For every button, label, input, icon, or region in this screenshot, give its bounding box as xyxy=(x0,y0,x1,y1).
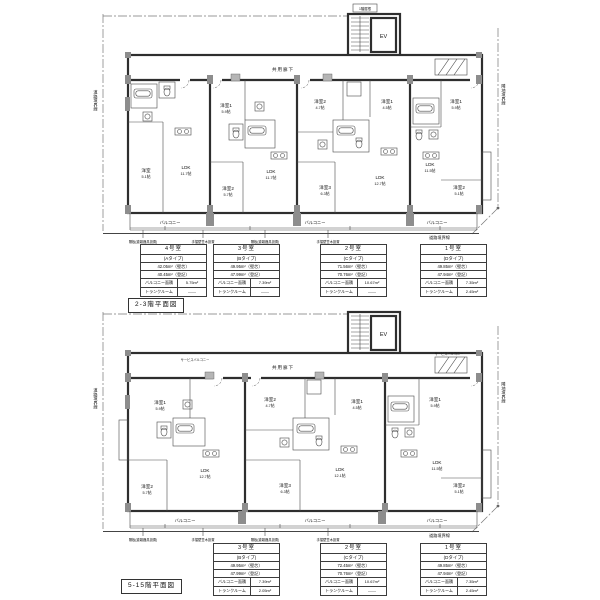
area-registered: 47.94m²（登記） xyxy=(421,270,486,278)
room-label: 洋室1 xyxy=(381,98,393,105)
unit-table-lower-room2: 2号室 (Cタイプ) 72.45m²（壁芯） 70.76m²（登記） バルコニー… xyxy=(320,543,387,596)
meter-box xyxy=(315,372,324,379)
room-size: 6.3帖 xyxy=(280,489,289,494)
room-type: (Bタイプ) xyxy=(214,254,279,262)
area-registered: 70.76m²（登記） xyxy=(321,270,386,278)
balcony-area-value: 7.39m² xyxy=(251,279,279,287)
room-size: 11.7帖 xyxy=(181,171,192,176)
room-label: LDK xyxy=(201,468,211,473)
room-number: 4号室 xyxy=(141,245,206,254)
side-service-balcony xyxy=(482,152,491,200)
room-label: 洋室2 xyxy=(222,185,234,192)
balcony-label: バルコニー xyxy=(427,220,448,225)
note-label: 手摺壁笠木設置 xyxy=(316,537,340,542)
balcony-label: バルコニー xyxy=(160,220,181,225)
room-label: 洋室2 xyxy=(453,184,465,191)
boundary-bottom-label: 道路境界線 xyxy=(429,532,451,539)
room-size: 5.7帖 xyxy=(223,192,232,197)
room-type: (Dタイプ) xyxy=(421,254,486,262)
room-label: LDK xyxy=(376,175,386,180)
room-size: 5.1帖 xyxy=(141,174,150,179)
floorplan-lower: 道路境界線 隣地境界線 道路境界線 EV xyxy=(85,300,515,543)
balcony-area-label: バルコニー面積 xyxy=(421,279,458,287)
room-number: 2号室 xyxy=(321,544,386,553)
room-label: 洋室2 xyxy=(264,396,276,403)
area-registered: 47.94m²（登記） xyxy=(421,569,486,577)
area-wallcore: 49.95m²（壁芯） xyxy=(214,262,279,270)
room-label: 洋室2 xyxy=(314,98,326,105)
balcony-label: バルコニー xyxy=(175,518,196,523)
trunk-label: トランクルーム xyxy=(421,587,458,595)
balcony-notes: 隔板(避難器具設置) 手摺壁笠木設置 隔板(避難器具設置) 手摺壁笠木設置 xyxy=(129,528,341,542)
room-size: 5.7帖 xyxy=(142,490,151,495)
room-label: 洋室3 xyxy=(279,482,291,489)
room-label: 洋室3 xyxy=(319,184,331,191)
unit-table-upper-room4: 4号室 (Aタイプ) 42.05m²（壁芯） 40.45m²（登記） バルコニー… xyxy=(140,244,207,297)
balcony-label: バルコニー xyxy=(305,220,326,225)
meter-box xyxy=(231,74,240,81)
room-size: 6.3帖 xyxy=(320,191,329,196)
area-wallcore: 49.95m²（壁芯） xyxy=(214,561,279,569)
room-number: 1号室 xyxy=(421,544,486,553)
area-wallcore: 71.56m²（壁芯） xyxy=(321,262,386,270)
balcony-area-value: 10.67m² xyxy=(358,578,386,586)
room-size: 5.9帖 xyxy=(221,109,230,114)
balcony-area-value: 7.35m² xyxy=(458,578,486,586)
balcony-area-value: 10.67m² xyxy=(358,279,386,287)
balcony-label: バルコニー xyxy=(305,518,326,523)
corridor-label: 共用廊下 xyxy=(272,66,294,73)
room-size: 12.1帖 xyxy=(334,473,345,478)
room-label: 洋室1 xyxy=(154,399,166,406)
balcony-area-label: バルコニー面積 xyxy=(214,279,251,287)
balcony-area-value: 7.39m² xyxy=(251,578,279,586)
room-size: 5.9帖 xyxy=(451,105,460,110)
room-number: 3号室 xyxy=(214,245,279,254)
room-size: 11.7帖 xyxy=(266,175,277,180)
area-registered: 47.99m²（登記） xyxy=(214,270,279,278)
room-size: 5.1帖 xyxy=(454,191,463,196)
room-type: (Bタイプ) xyxy=(214,553,279,561)
room-size: 5.9帖 xyxy=(430,403,439,408)
trunk-value: 2.45m² xyxy=(458,587,486,595)
room-size: 12.7帖 xyxy=(199,474,210,479)
balcony-area-label: バルコニー面積 xyxy=(321,578,358,586)
balcony-area-value: 5.75m² xyxy=(178,279,206,287)
room-label: 洋室2 xyxy=(453,482,465,489)
unit-table-upper-room3: 3号室 (Bタイプ) 49.95m²（壁芯） 47.99m²（登記） バルコニー… xyxy=(213,244,280,297)
room-number: 1号室 xyxy=(421,245,486,254)
balcony-area-label: バルコニー面積 xyxy=(214,578,251,586)
room-label: LDK xyxy=(182,165,192,170)
stair-elevator-block: EV 1階屋根 xyxy=(348,4,400,56)
meter-box xyxy=(205,372,214,379)
balcony-label: バルコニー xyxy=(427,518,448,523)
room-size: 4.7帖 xyxy=(265,403,274,408)
trunk-label: トランクルーム xyxy=(214,288,251,296)
trunk-value: 2.05m² xyxy=(251,587,279,595)
balcony-area-label: バルコニー面積 xyxy=(321,279,358,287)
area-wallcore: 49.85m²（壁芯） xyxy=(421,262,486,270)
area-wallcore: 42.05m²（壁芯） xyxy=(141,262,206,270)
area-registered: 40.45m²（登記） xyxy=(141,270,206,278)
boundary-left-label: 道路境界線 xyxy=(93,387,99,410)
room-type: (Cタイプ) xyxy=(321,254,386,262)
balcony-area-label: バルコニー面積 xyxy=(141,279,178,287)
room-label: LDK xyxy=(426,162,436,167)
room-label: 洋室1 xyxy=(450,98,462,105)
floorplan-upper: 道路境界線 隣地境界線 道路境界線 EV 1階屋根 xyxy=(85,2,515,245)
room-label: 洋室2 xyxy=(141,483,153,490)
side-service-balcony xyxy=(482,450,491,498)
trunk-label: トランクルーム xyxy=(321,587,358,595)
trunk-value: —— xyxy=(358,587,386,595)
room-size: 4.5帖 xyxy=(382,105,391,110)
note-label: 手摺壁笠木設置 xyxy=(191,537,215,542)
trunk-label: トランクルーム xyxy=(421,288,458,296)
balcony-area-label: バルコニー面積 xyxy=(421,578,458,586)
unit-table-upper-room1: 1号室 (Dタイプ) 49.85m²（壁芯） 47.94m²（登記） バルコニー… xyxy=(420,244,487,297)
side-service-balcony xyxy=(119,420,128,460)
trunk-value: —— xyxy=(358,288,386,296)
service-balcony-label: サービスバルコニー xyxy=(435,351,464,356)
meter-box xyxy=(323,74,332,81)
trunk-label: トランクルーム xyxy=(321,288,358,296)
unit-table-lower-room3: 3号室 (Bタイプ) 49.95m²（壁芯） 47.99m²（登記） バルコニー… xyxy=(213,543,280,596)
balcony-area-value: 7.35m² xyxy=(458,279,486,287)
room-label: 洋室 xyxy=(141,167,151,174)
room-label: 洋室1 xyxy=(220,102,232,109)
room-size: 5.9帖 xyxy=(155,406,164,411)
room-type: (Dタイプ) xyxy=(421,553,486,561)
trunk-value: 2.45m² xyxy=(458,288,486,296)
area-wallcore: 49.85m²（壁芯） xyxy=(421,561,486,569)
corridor-label: 共用廊下 xyxy=(272,364,294,371)
trunk-value: —— xyxy=(251,288,279,296)
building-shell xyxy=(125,52,491,214)
note-label: 隔板(避難器具設置) xyxy=(251,537,280,542)
unit-table-lower-room1: 1号室 (Dタイプ) 49.85m²（壁芯） 47.94m²（登記） バルコニー… xyxy=(420,543,487,596)
plan-title-lower: 5-15階平面図 xyxy=(121,579,182,594)
room-size: 4.7帖 xyxy=(315,105,324,110)
room-label: 洋室1 xyxy=(351,398,363,405)
stair-elevator-block: EV xyxy=(348,312,400,354)
boundary-left-label: 道路境界線 xyxy=(93,89,99,112)
boundary-right-label: 隣地境界線 xyxy=(501,83,507,106)
elevator-label: EV xyxy=(380,34,388,40)
trunk-label: トランクルーム xyxy=(141,288,178,296)
elevator-label: EV xyxy=(380,332,388,338)
room-size: 4.5帖 xyxy=(352,405,361,410)
service-balcony-label: サービスバルコニー xyxy=(181,357,210,362)
room-size: 11.5帖 xyxy=(425,168,436,173)
room-size: 12.7帖 xyxy=(374,181,385,186)
area-registered: 70.76m²（登記） xyxy=(321,569,386,577)
unit-table-upper-room2: 2号室 (Cタイプ) 71.56m²（壁芯） 70.76m²（登記） バルコニー… xyxy=(320,244,387,297)
boundary-bottom-label: 道路境界線 xyxy=(429,234,451,241)
room-number: 2号室 xyxy=(321,245,386,254)
room-label: 洋室1 xyxy=(429,396,441,403)
roof-note-label: 1階屋根 xyxy=(359,6,372,11)
room-number: 3号室 xyxy=(214,544,279,553)
room-type: (Aタイプ) xyxy=(141,254,206,262)
trunk-label: トランクルーム xyxy=(214,587,251,595)
boundary-right-label: 隣地境界線 xyxy=(501,381,507,404)
room-size: 11.5帖 xyxy=(432,466,443,471)
floorplan-sheet: 道路境界線 隣地境界線 道路境界線 EV 1階屋根 xyxy=(0,0,600,600)
room-label: LDK xyxy=(267,169,277,174)
area-wallcore: 72.45m²（壁芯） xyxy=(321,561,386,569)
trunk-value: —— xyxy=(178,288,206,296)
area-registered: 47.99m²（登記） xyxy=(214,569,279,577)
room-size: 5.1帖 xyxy=(454,489,463,494)
room-type: (Cタイプ) xyxy=(321,553,386,561)
balcony-strip xyxy=(130,213,477,230)
balcony-notes: 隔板(避難器具設置) 手摺壁笠木設置 隔板(避難器具設置) 手摺壁笠木設置 xyxy=(129,230,341,244)
room-label: LDK xyxy=(433,460,443,465)
note-label: 隔板(避難器具設置) xyxy=(129,537,158,542)
room-label: LDK xyxy=(336,467,346,472)
